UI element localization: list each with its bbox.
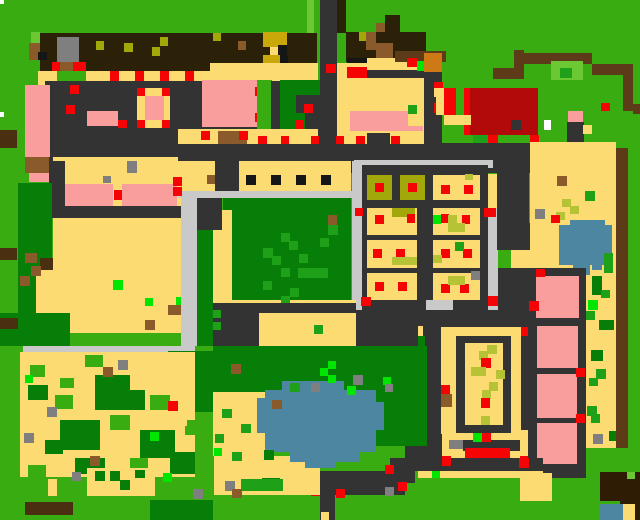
pink-storage-boxes[interactable] [528,268,586,478]
window-tile [321,175,331,185]
stone-tile [593,434,603,444]
stone-tile [103,176,111,183]
dark-foliage-tile [599,320,614,330]
dirt-road[interactable] [320,0,337,161]
dirt-tile [231,364,241,374]
wall-tile [49,206,185,218]
sand-tile [53,218,185,333]
foliage-tile [589,378,598,386]
foliage-tile [232,452,242,461]
pink-roof-tile [29,173,49,182]
sprout-tile [145,298,153,306]
crop-plot-grid[interactable] [352,161,498,315]
game-map-viewport[interactable] [0,0,640,520]
wood-tile [25,502,73,515]
red-item-tile [173,177,182,186]
foliage-tile [241,424,251,433]
wall-tile [567,122,584,145]
foliage-tile [586,311,595,320]
stone-tile [535,209,545,219]
bush-tile [627,472,635,479]
red-item-tile [114,190,122,200]
sand-tile [623,504,635,520]
foliage-tile [241,479,283,491]
white-marker-tile [544,120,551,130]
dirt-tile [232,489,242,498]
wood-tile [0,318,18,329]
sprout-tile [383,377,391,385]
small-pond[interactable] [557,220,612,275]
wood-tile [0,248,17,260]
stone-tile [385,487,394,496]
red-item-tile [530,135,539,143]
dark-foliage-tile [592,276,602,295]
dark-roof-tile [337,0,346,33]
crop-sprout-tile [570,206,579,214]
wall-tile [497,173,529,250]
foliage-tile [591,414,600,423]
pink-roof-tile [65,184,113,206]
courtyard-target-pad[interactable] [136,88,180,128]
water-tile [600,504,623,520]
dirt-tile [207,175,216,184]
dark-roof-tile [385,15,400,32]
window-tile [246,175,256,185]
sprout-tile [113,280,123,290]
white-marker-tile [0,112,4,117]
window-tile [271,175,281,185]
large-pond[interactable] [257,381,384,472]
red-item-tile [398,482,407,491]
red-item-tile [488,135,498,143]
wall-tile [356,310,426,346]
planter-structure[interactable] [418,310,543,478]
sprout-tile [588,300,598,310]
foliage-tile [215,434,224,443]
foliage-tile [596,369,606,379]
dirt-tile [366,32,376,50]
white-marker-tile [0,0,4,4]
fence-tile [616,148,628,448]
window-tile [296,175,306,185]
dirt-tile [376,23,385,32]
crop-sprout-tile [562,199,571,207]
sand-tile [321,512,329,520]
wild-brush-area[interactable] [20,346,215,496]
foliage-tile [585,191,595,201]
foliage-tile [473,135,488,143]
dark-foliage-tile [0,313,70,346]
stone-tile [385,384,393,392]
dirt-tile [557,176,567,186]
foliage-tile [601,290,610,298]
bush-tile [307,0,314,33]
dirt-tile [145,320,155,330]
sprout-tile [214,448,222,456]
sand-tile [583,125,592,134]
dark-foliage-tile [150,500,213,520]
pink-roof-tile [122,184,177,206]
dirt-tile [31,266,41,276]
dark-foliage-tile [591,350,603,361]
red-item-tile [336,489,345,498]
farmhouse-complex[interactable] [40,33,340,163]
wall-tile [215,161,240,191]
red-item-tile [385,465,394,474]
foliage-tile [222,409,232,418]
fenced-pasture[interactable] [426,50,640,115]
sprout-tile [328,361,336,369]
bush-tile [31,32,40,43]
dirt-tile [25,253,37,263]
sand-tile [65,173,178,184]
wood-tile [40,258,53,270]
stone-path[interactable] [178,191,352,346]
dirt-tile [20,276,30,286]
sprout-tile [320,368,328,376]
wood-tile [0,130,17,148]
